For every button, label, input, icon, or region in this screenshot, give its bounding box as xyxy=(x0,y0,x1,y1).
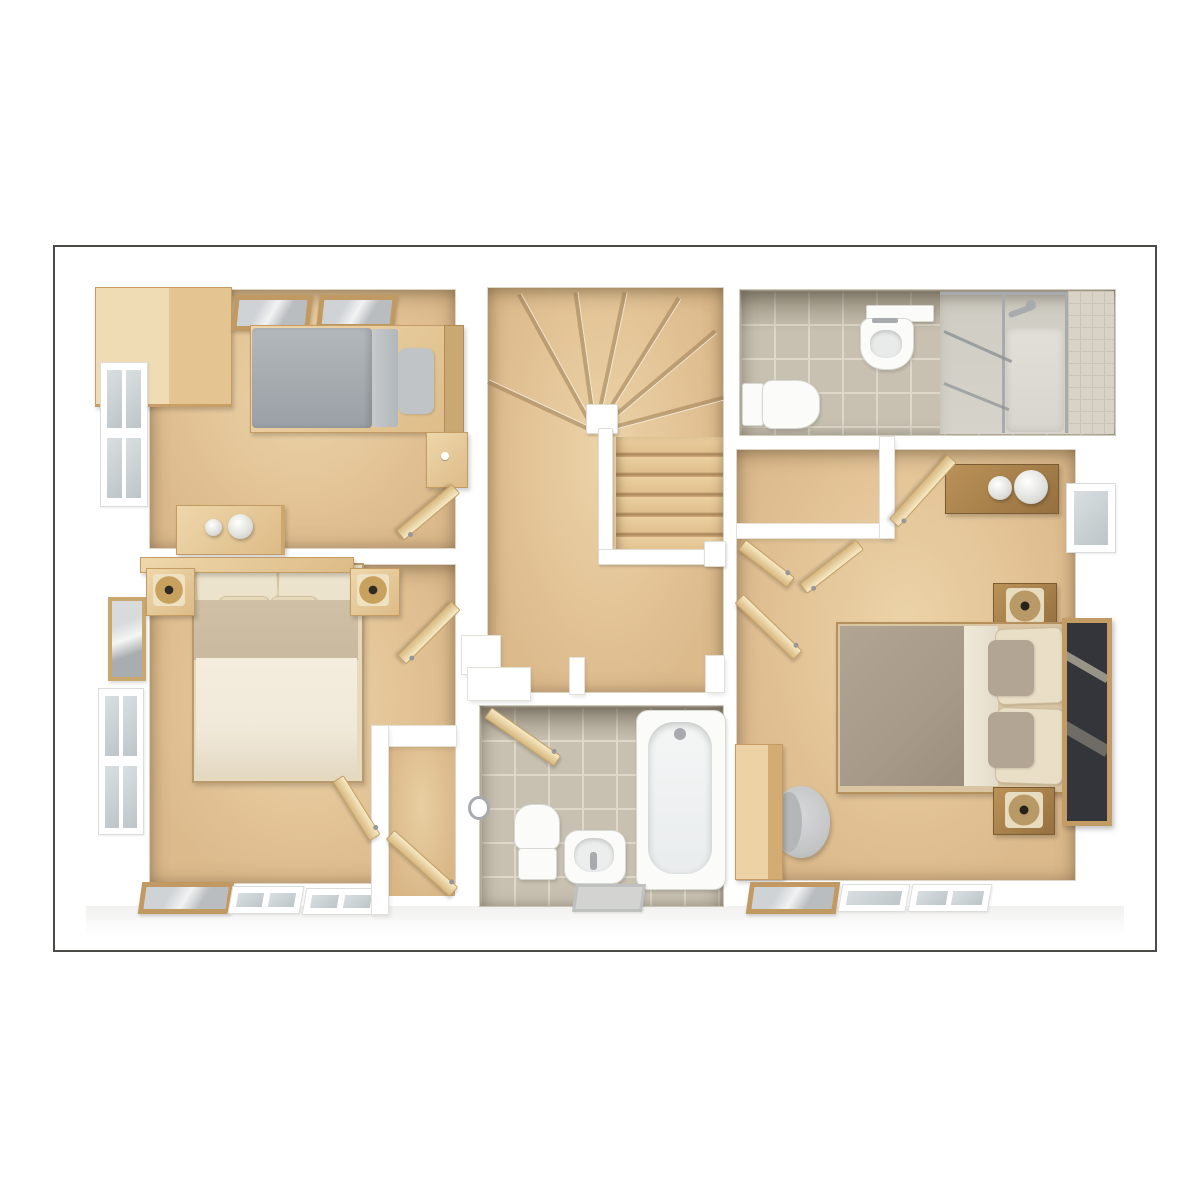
shower-wall-tiles xyxy=(1068,291,1114,434)
bathroom-door-post xyxy=(570,658,584,694)
bathtub-tap xyxy=(674,728,686,740)
mirror-reflection-streak xyxy=(1062,651,1109,683)
bedroom-2-floor-frame xyxy=(138,882,234,914)
shower-tray xyxy=(1006,328,1064,432)
bathtub-interior xyxy=(648,722,712,874)
single-bed-sheet-fold xyxy=(372,329,398,427)
master-pillow-taupe-bottom xyxy=(988,712,1034,768)
towel-ring xyxy=(468,796,490,820)
master-bedroom-window xyxy=(1066,483,1116,553)
shower-valve xyxy=(1026,300,1036,310)
window-pane xyxy=(267,892,298,908)
window-pane xyxy=(122,765,138,829)
master-nightstand-bottom-lamp xyxy=(1005,792,1043,828)
window-pane xyxy=(235,892,266,908)
master-pillow-taupe-top xyxy=(988,640,1034,696)
window-pane xyxy=(125,369,142,429)
bathroom-toilet-cistern xyxy=(518,848,557,880)
master-flat-window-1 xyxy=(838,884,911,912)
single-bed-headboard xyxy=(444,325,464,433)
window-pane xyxy=(342,894,374,909)
stair-handrail-bottom xyxy=(598,549,720,565)
shower-glass-frame-right xyxy=(1065,292,1068,433)
dresser-lamp-small xyxy=(988,476,1012,500)
desk-lamp-large xyxy=(228,514,253,539)
landing-corner-post xyxy=(706,656,724,692)
window-pane xyxy=(915,890,950,906)
ensuite-toilet-bowl xyxy=(762,380,820,429)
master-flat-window-2 xyxy=(908,884,993,912)
bedroom-3-picture-frame-2 xyxy=(316,295,398,329)
window-pane xyxy=(125,437,142,499)
bedroom-3-bedside-table xyxy=(426,432,468,488)
ensuite-toilet-cistern xyxy=(742,383,764,426)
ensuite-basin-tap xyxy=(872,318,898,323)
nightstand-left-lamp xyxy=(153,574,185,606)
window-pane xyxy=(309,894,341,909)
window-pane xyxy=(106,369,123,429)
dresser-lamp-large xyxy=(1014,470,1048,504)
bedroom-2-cupboard-wall-side xyxy=(372,726,388,914)
bedroom-2-wall-picture xyxy=(108,597,146,681)
window-pane xyxy=(122,695,138,757)
master-tall-cabinet xyxy=(735,744,783,880)
master-wardrobe-nook-wall-right xyxy=(880,437,894,538)
bathroom-toilet-lid xyxy=(514,804,560,850)
shower-glass-frame-left xyxy=(1002,292,1005,433)
desk-lamp-small xyxy=(205,519,222,536)
nightstand-right-lamp xyxy=(357,574,389,606)
bedside-table-knob xyxy=(441,452,449,460)
shower-glass-frame-top xyxy=(940,292,1068,295)
bed-2-duvet-top xyxy=(194,600,358,660)
window-pane xyxy=(1073,490,1109,546)
window-pane xyxy=(950,890,986,906)
ensuite-basin-bowl xyxy=(870,330,902,358)
master-wardrobe-nook-wall-bottom xyxy=(737,524,893,538)
single-bed-pillow xyxy=(398,348,434,414)
stair-flight xyxy=(616,437,723,557)
single-bed-duvet xyxy=(252,328,372,428)
master-bed-duvet xyxy=(840,626,964,786)
stair-handrail-vertical xyxy=(598,428,613,558)
mirror-reflection-streak xyxy=(1062,721,1111,756)
floor-plan-render xyxy=(0,0,1200,1200)
bedroom-2-cupboard-floor xyxy=(388,746,455,896)
stair-bulkhead-lower xyxy=(468,668,530,700)
bathroom-basin-tap xyxy=(590,852,597,870)
master-nightstand-top-lamp xyxy=(1006,588,1044,624)
bath-mat xyxy=(572,884,646,912)
stair-end-post xyxy=(704,541,726,567)
bedroom-2-window xyxy=(98,688,144,835)
bedroom-2-flat-window-2 xyxy=(302,888,381,915)
window-pane xyxy=(104,695,120,757)
bedroom-2-flat-window-1 xyxy=(228,886,305,914)
bed-2-duvet-lower xyxy=(196,658,357,777)
window-pane xyxy=(104,765,120,829)
bedroom-3-window xyxy=(100,362,148,507)
window-pane xyxy=(106,437,123,499)
window-pane xyxy=(845,890,904,906)
master-floor-frame xyxy=(746,882,840,914)
master-leaning-mirror xyxy=(1062,618,1112,826)
